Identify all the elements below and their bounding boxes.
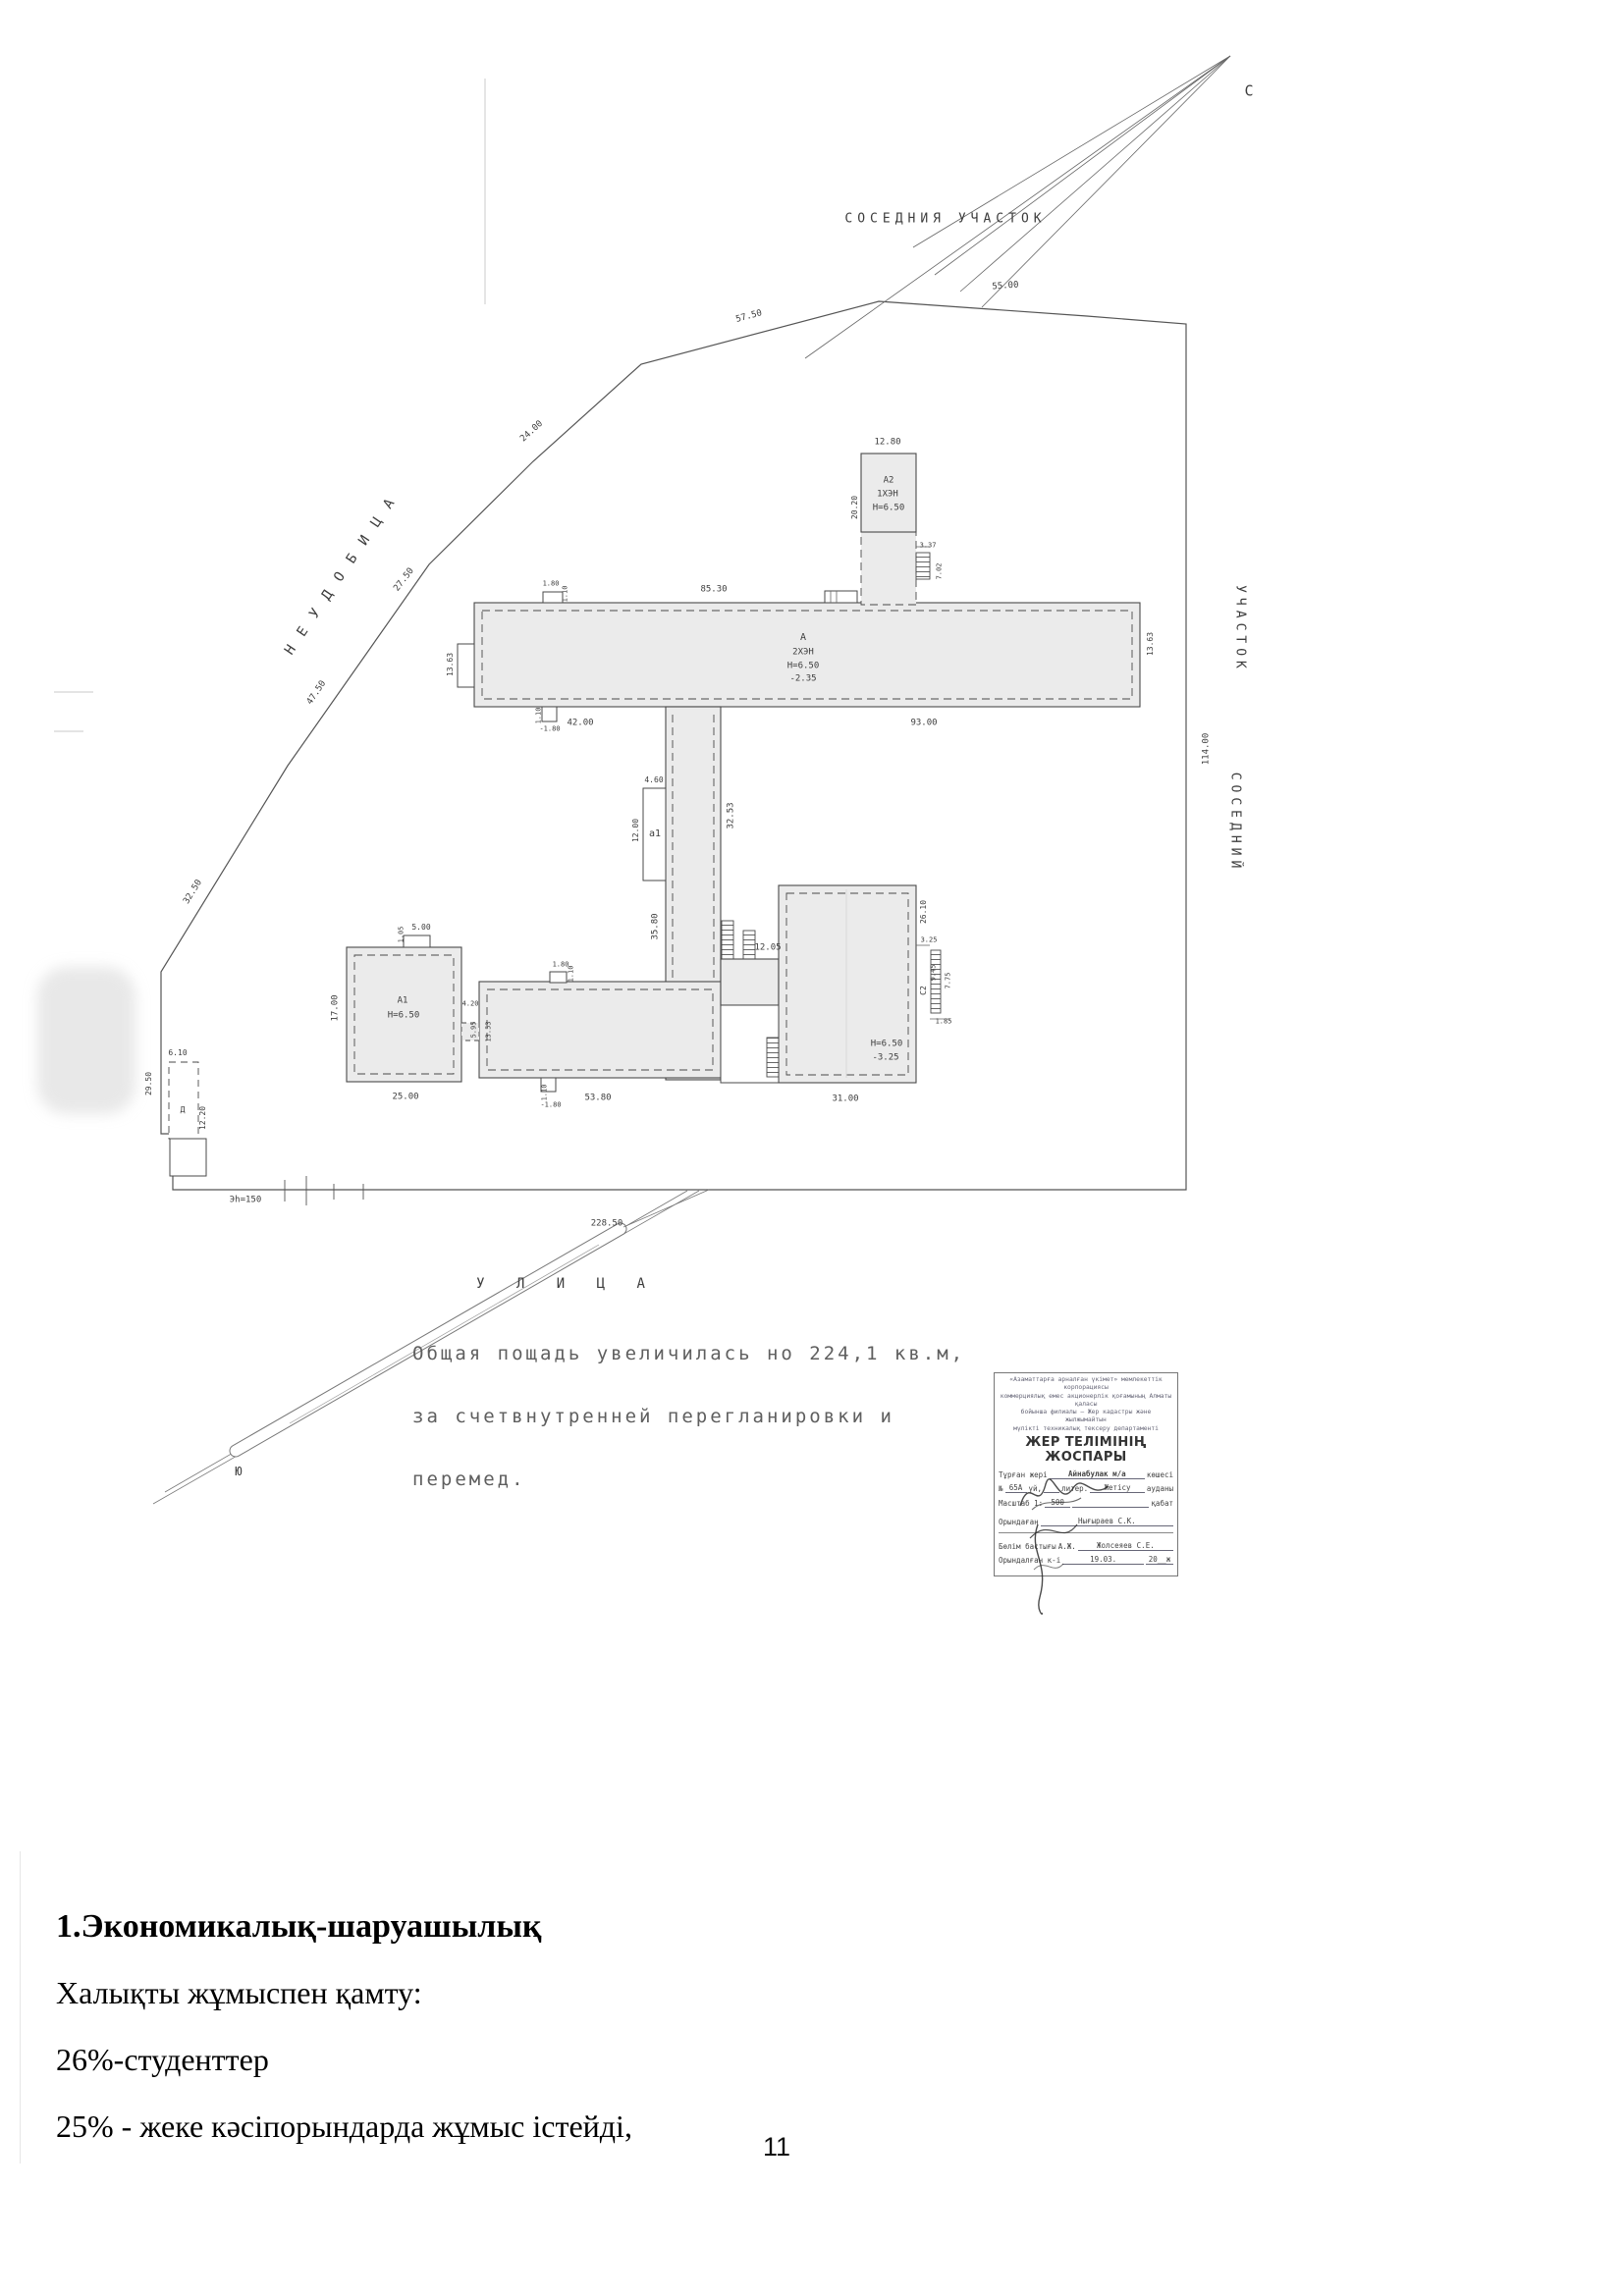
dim-right-945: 9.45 (931, 965, 938, 982)
label-neighbor-right-lower: СОСЕДНИЙ (1229, 773, 1242, 874)
building-a2-floors: 1ХЭН (877, 491, 898, 500)
building-a-floors: 2ХЭН (792, 649, 814, 658)
dim-right-bottom: 31.00 (832, 1095, 858, 1104)
building-a-canopy (825, 591, 857, 603)
label-street: У Л И Ц А (476, 1277, 657, 1291)
dim-right-325: 3.25 (921, 937, 938, 944)
dim-site-top: 55.00 (992, 282, 1019, 293)
label-power-line: Эh=150 (230, 1197, 262, 1205)
building-right-elev: -3.25 (872, 1054, 898, 1063)
stamp-location-suffix: көшесі (1147, 1470, 1173, 1479)
dim-corridor-left: 35.80 (652, 913, 661, 939)
stamp-header: «Азаматтарға арналған үкімет» мемлекетті… (999, 1376, 1173, 1433)
note-line-1: Общая пощадь увеличилась но 224,1 кв.м, (412, 1343, 965, 1364)
dim-lower-porch-d: 1.10 (568, 966, 575, 983)
stamp-number-sign: № (999, 1484, 1003, 1493)
dim-a-notch-d: 1.10 (536, 708, 543, 724)
dim-shed-top: 6.10 (168, 1049, 187, 1057)
dim-lower-notch-d: 1.10 (542, 1085, 549, 1101)
building-a-bottom-notch (542, 707, 557, 721)
stamp-district-suffix: ауданы (1147, 1484, 1173, 1493)
stamp-header-line1: «Азаматтарға арналған үкімет» мемлекетті… (999, 1376, 1173, 1393)
body-line-2: 26%-студенттер (56, 2042, 269, 2078)
body-line-3: 25% - жеке кәсіпорындарда жұмыс істейді, (56, 2109, 632, 2145)
stamp-title: ЖЕР ТЕЛІМІНІҢ ЖОСПАРЫ (999, 1435, 1173, 1465)
building-a1-height: Н=6.50 (388, 1012, 420, 1021)
note-line-3: перемед. (412, 1468, 526, 1490)
shed-mark: Д (181, 1106, 186, 1114)
stamp-header-line2: коммерциялық емес акционерлік қоғамының … (999, 1393, 1173, 1410)
south-letter: Ю (235, 1466, 242, 1477)
site-plan-drawing (0, 0, 1624, 1624)
notch-stair-2 (743, 931, 755, 959)
dim-a2-side: 20.20 (851, 496, 859, 519)
dim-corridor-right: 32.53 (728, 802, 736, 828)
dim-link-d1: 5.95 (471, 1022, 478, 1039)
dim-link-w: 4.20 (462, 1001, 479, 1008)
building-right-height: Н=6.50 (871, 1041, 903, 1049)
dim-a1-annex-d: 12.00 (632, 819, 640, 842)
dim-corridor-stair: 12.05 (754, 944, 781, 953)
dim-lower-notch-w: -1.80 (540, 1102, 561, 1109)
dim-lower-bottom: 53.80 (584, 1095, 611, 1103)
label-neighbor-right-upper: УЧАСТОК (1234, 585, 1247, 673)
dim-right-775: 7.75 (946, 973, 952, 989)
stamp-header-line3: бойынша филиалы – Жер кадастры және жылж… (999, 1409, 1173, 1425)
building-a-height: Н=6.50 (787, 663, 820, 671)
north-arrow (805, 56, 1230, 358)
stamp-header-line4: мүлікті техникалық тексеру департаменті (999, 1425, 1173, 1433)
left-margin-line (20, 1851, 21, 2163)
section-heading: 1.Экономикалық-шаруашылық (56, 1908, 541, 1946)
building-a-elev: -2.35 (789, 675, 816, 684)
dim-a1-porch-w: 5.00 (411, 924, 430, 932)
dim-a-porch-w: 1.80 (543, 581, 560, 588)
dim-a-bottom-left: 42.00 (567, 720, 593, 728)
notch-stair-1 (722, 921, 733, 959)
dim-a-notch-w: -1.80 (539, 726, 560, 733)
dim-right-185: 1.85 (936, 1019, 952, 1026)
building-a1 (347, 935, 479, 1082)
dim-a1-side: 17.00 (332, 994, 341, 1021)
building-right-stair-c2 (931, 950, 941, 1013)
building-a2-stair (916, 553, 930, 579)
north-letter: С (1244, 84, 1253, 99)
title-block-stamp: «Азаматтарға арналған үкімет» мемлекетті… (994, 1372, 1178, 1576)
dim-a-porch-d: 1.10 (563, 586, 569, 603)
building-a2-label: А2 (884, 477, 894, 486)
building-lower-porch (550, 972, 567, 983)
building-a-top-porch (543, 592, 563, 603)
stair-c2-label: С2 (920, 986, 928, 995)
dim-right-side: 26.10 (920, 900, 928, 924)
dim-shed-left: 29.50 (145, 1072, 153, 1095)
scanned-document-page: С СОСЕДНИЯ УЧАСТОК УЧАСТОК СОСЕДНИЙ НЕУД… (0, 0, 1624, 2296)
dim-shed-right: 12.20 (199, 1106, 207, 1130)
building-a2 (861, 454, 930, 605)
note-line-2: за счетвнутренней перегланировки и (412, 1406, 894, 1427)
building-a2-height: Н=6.50 (873, 505, 905, 513)
page-number: 11 (763, 2132, 790, 2163)
dim-a1-bottom: 25.00 (392, 1094, 418, 1102)
chief-signature (1024, 1511, 1103, 1619)
dim-a1-porch-d: 1.05 (399, 927, 406, 943)
label-neighbor-top: СОСЕДНИЯ УЧАСТОК (844, 213, 1046, 226)
stamp-floor-label: қабат (1151, 1499, 1173, 1508)
dim-site-bottom: 228.50 (591, 1220, 623, 1229)
building-a1-label: А1 (398, 997, 408, 1006)
dim-site-right: 114.00 (1203, 733, 1212, 766)
dim-a-top: 85.30 (700, 586, 727, 595)
dim-a2-top: 12.80 (874, 439, 900, 448)
dim-a-bottom-right: 93.00 (910, 720, 937, 728)
building-a-label: А (800, 633, 806, 643)
courtyard-stair (767, 1038, 779, 1077)
building-a-left-porch (458, 644, 474, 687)
dim-a1-annex-w: 4.60 (644, 776, 663, 784)
building-lower (479, 972, 721, 1092)
dim-a2-stair-w: 3.37 (920, 543, 937, 550)
dim-a2-stair-d: 7.02 (937, 563, 944, 580)
building-a1-porch (404, 935, 430, 947)
dim-a-side-left: 13.63 (447, 653, 455, 676)
dim-a-side-right: 13.63 (1147, 632, 1155, 656)
annex-a1-label: а1 (649, 829, 661, 839)
bridge-block (721, 959, 779, 1005)
body-line-1: Халықты жұмыспен қамту: (56, 1975, 422, 2011)
stamp-year-value: 20__ж (1146, 1555, 1173, 1565)
dim-link-d2: 13.53 (486, 1021, 493, 1041)
